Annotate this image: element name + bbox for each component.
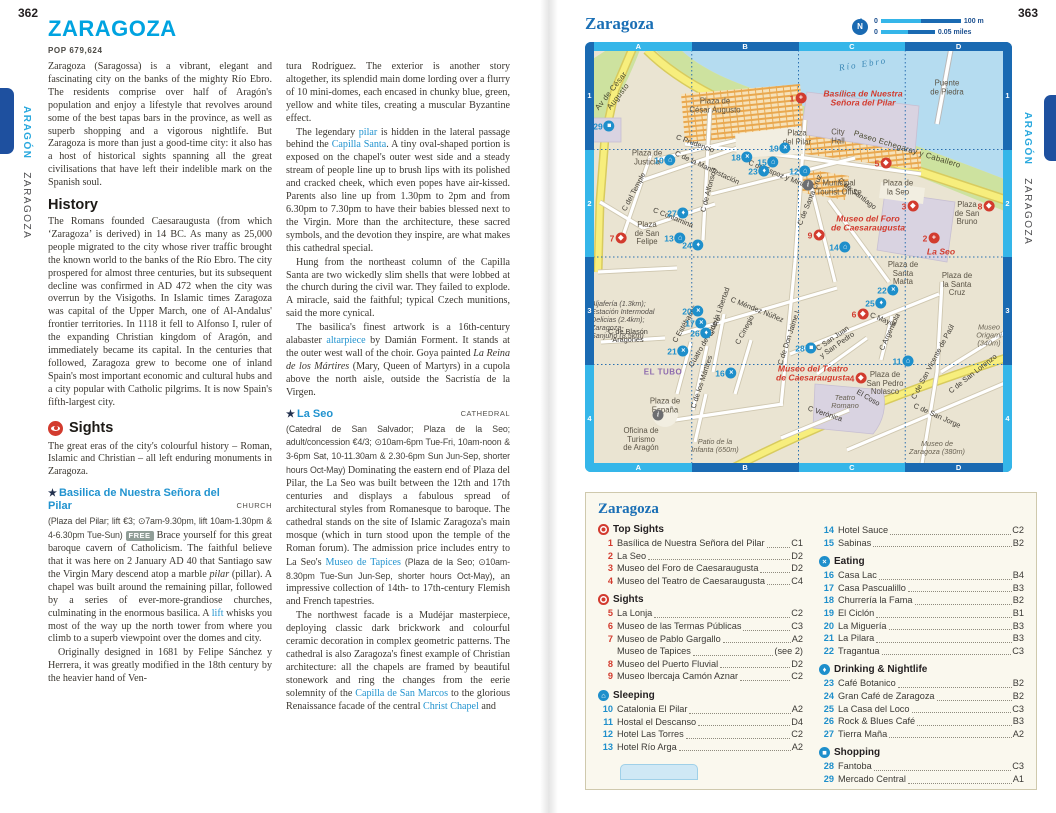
map-marker-number: 9 [808,230,813,240]
index-section-header: ⌂Sleeping [598,690,803,701]
map-marker-icon: ◆ [983,201,994,212]
index-item-leader [760,572,790,573]
index-item-number: 19 [819,607,834,620]
map-marker-number: 25 [865,298,874,308]
index-item-leader [908,783,1012,784]
map-marker-14: 14⌂ [829,242,850,253]
index-item-gridref: D2 [791,550,803,563]
map-marker-11: 11⌂ [893,356,914,367]
city-title: ZARAGOZA [48,16,510,42]
map-marker-number: 8 [978,201,983,211]
index-item-number: 6 [598,620,613,633]
poi-entry-category: CHURCH [231,500,273,513]
index-item: 1Basílica de Nuestra Señora del PilarC1 [598,537,803,550]
paragraph: The northwest facade is a Mudéjar master… [286,610,510,713]
index-item: 12Hotel Las TorresC2 [598,728,803,741]
north-arrow-icon: N [852,19,868,35]
side-city-label: ZARAGOZA [21,172,32,239]
map-label: MuseoOrigami(340m) [976,324,1002,349]
text-segment: . A tiny oval-shaped portion is exposed … [286,139,510,253]
index-item: 20La MigueríaB3 [819,620,1024,633]
text-segment: The northwest facade is a Mudéjar master… [286,610,510,698]
map-sight-label-line: La Seo [927,247,955,256]
grid-column-label-A: A [585,42,692,51]
map-label-line: de Aragón [623,444,659,453]
map-marker-icon: ♦ [678,208,689,219]
map-label-line: Sanjurjo (8.5km) [591,332,655,340]
index-item: 15SabinasB2 [819,537,1024,550]
map-marker-number: 6 [852,309,857,319]
map-marker-number: 5 [875,158,880,168]
index-item-leader [873,546,1012,547]
index-section-header: Top Sights [598,524,803,535]
map-marker-number: 22 [877,285,886,295]
index-item: 21La PilaraB3 [819,632,1024,645]
index-item-leader [937,700,1012,701]
index-item-number: 5 [598,607,613,620]
index-item-leader [693,655,774,656]
map-title: Zaragoza [585,14,654,34]
scale-metric-label: 100 m [964,18,984,25]
poi-entry-body: (Plaza del Pilar; lift €3; ⊙7am-9.30pm, … [48,515,272,646]
index-item-name: Museo de Pablo Gargallo [617,633,721,646]
grid-row-label-3: 3 [1003,257,1012,365]
index-section-title: Shopping [834,747,880,758]
poi-entry-name: ★La Seo [286,408,455,421]
index-item-gridref: C2 [791,670,803,683]
scale-bar-metric [881,19,961,23]
index-item-name: El Ciclón [838,607,874,620]
side-region-label: ARAGÓN [1022,112,1033,165]
index-section-drinking-nightlife: ♦Drinking & Nightlife23Café BotanicoB224… [819,664,1024,740]
index-item-gridref: B3 [1013,620,1024,633]
index-item-leader [917,725,1012,726]
map-marker-2: 2+ [923,233,940,244]
text-column-1: Zaragoza (Saragossa) is a vibrant, elega… [48,61,272,715]
paragraph: Originally designed in 1681 by Felipe Sá… [48,647,272,686]
paragraph: Zaragoza (Saragossa) is a vibrant, elega… [48,61,272,190]
index-item-number: 1 [598,537,613,550]
section-heading: History [48,199,272,212]
index-item: 5La LonjaC2 [598,607,803,620]
map-marker-number: 24 [682,240,691,250]
map-marker-icon: ♦ [693,240,704,251]
index-item-name: Churrería la Fama [838,594,913,607]
index-item-leader [767,547,791,548]
map-marker-icon: × [678,346,689,357]
index-item-gridref: D4 [791,716,803,729]
map-marker-icon: ⌂ [665,155,676,166]
city-map: Río EbroPuentede PiedraPaseo Echegaray y… [585,42,1012,472]
index-item-number: 7 [598,633,613,646]
map-marker-25: 25♦ [865,298,886,309]
cross-reference-link: altarpiece [326,335,365,346]
side-spacer [1022,170,1033,174]
index-item-gridref: A1 [1013,773,1024,786]
map-label: Oficina deTurismode Aragón [623,427,659,453]
index-item-number: 4 [598,575,613,588]
index-item-leader [912,712,1012,713]
index-item-leader [879,579,1012,580]
map-marker-20: 20× [682,306,703,317]
index-item-name: Tierra Maña [838,728,887,741]
paragraph: The Romans founded Caesaraugusta (from w… [48,216,272,410]
index-section-eating: ×Eating16Casa LacB417Casa PascualilloB31… [819,556,1024,657]
poi-entry-heading: ★La SeoCATHEDRAL [286,408,510,421]
map-marker-number: 26 [690,328,699,338]
text-columns: Zaragoza (Saragossa) is a vibrant, elega… [48,61,510,715]
index-item-leader [679,750,791,751]
index-item-name: Hotel Las Torres [617,728,684,741]
map-marker-5: 5◆ [875,158,892,169]
index-item: 19El CiclónB1 [819,607,1024,620]
index-item-gridref: C4 [791,575,803,588]
map-label: Aljafería (1.3km);Estación IntermodalDel… [591,300,655,340]
index-item: 4Museo del Teatro de CaesaraugustaC4 [598,575,803,588]
grid-column-label-D: D [905,42,1012,51]
grid-row-label-4: 4 [585,365,594,473]
population-line: POP 679,624 [48,46,510,55]
index-item-number: 10 [598,703,613,716]
paragraph: Hung from the northeast column of the Ca… [286,257,510,322]
map-marker-16: 16× [715,368,736,379]
index-item-name: Museo Ibercaja Camón Aznar [617,670,738,683]
shopping-category-icon: ■ [819,747,830,758]
map-label: EL TUBO [644,369,682,378]
map-scale: N 0 100 m 0 0.05 miles [852,16,1020,40]
index-item-number: 2 [598,550,613,563]
poi-entry-category: CATHEDRAL [455,408,510,421]
index-item-number: 25 [819,703,834,716]
scale-bar-imperial [881,30,935,34]
map-marker-icon: ◆ [857,309,868,320]
top-category-icon [598,524,609,535]
index-item-name: Museo del Foro de Caesaraugusta [617,562,758,575]
map-marker-icon: ♦ [701,328,712,339]
poi-entry-body: (Catedral de San Salvador; Plaza de la S… [286,423,510,610]
index-item-name: Sabinas [838,537,871,550]
map-marker-7: 7◆ [610,233,627,244]
map-label: Plaza deCésar Augusto [689,97,740,114]
grid-row-label-1: 1 [585,42,594,150]
index-item-name: Casa Lac [838,569,877,582]
map-marker-8: 8◆ [978,201,995,212]
map-label-line: la Seo [883,188,913,197]
index-item-gridref: A2 [1013,728,1024,741]
index-item: 10Catalonia El PilarA2 [598,703,803,716]
map-marker-21: 21× [667,346,688,357]
map-marker-number: 10 [654,155,663,165]
index-item-name: La Miguería [838,620,887,633]
free-badge: FREE [126,531,154,541]
map-label-line: César Augusto [689,106,740,115]
map-sight-label: Museo del Teatrode Caesaraugusta [776,365,850,384]
index-section-sleeping: ⌂Sleeping10Catalonia El PilarA211Hostal … [598,690,803,753]
map-label: Plazade SanFelipe [635,221,660,247]
index-item-gridref: B2 [1013,690,1024,703]
sights-heading: Sights [48,421,272,436]
map-sight-label: La Seo [927,247,955,256]
map-marker-19: 19× [769,143,790,154]
index-item-number: 28 [819,760,834,773]
map-marker-6: 6◆ [852,309,869,320]
index-item-leader [648,559,790,560]
index-item-gridref: D2 [791,658,803,671]
map-marker-icon: ♦ [759,166,770,177]
scale-metric: 0 100 m [874,16,984,26]
map-index-title: Zaragoza [598,501,1024,518]
map-sight-label-line: Señora del Pilar [823,99,902,108]
index-item-gridref: C3 [791,620,803,633]
index-section-title: Top Sights [613,524,664,535]
index-item-gridref: B3 [1013,632,1024,645]
map-marker-number: 13 [664,233,673,243]
index-section-title: Sights [613,594,644,605]
index-item-number: 24 [819,690,834,703]
map-marker-icon: × [888,285,899,296]
map-marker-27: 27♦ [667,208,688,219]
cross-reference-link: Museo de Tapices [325,557,400,568]
map-marker-icon: × [780,143,791,154]
map-label: CityHall [831,128,844,145]
left-page-content: ZARAGOZA POP 679,624 Zaragoza (Saragossa… [48,16,510,806]
map-label-line: Zaragoza (380m) [909,448,965,456]
map-marker-number: 19 [769,143,778,153]
index-item: 8Museo del Puerto FluvialD2 [598,658,803,671]
scale-imperial: 0 0.05 miles [874,27,971,37]
index-item: 18Churrería la FamaB2 [819,594,1024,607]
next-page-peek [620,764,698,780]
index-item-gridref: B3 [1013,582,1024,595]
index-item-leader [898,687,1012,688]
drinking-category-icon: ♦ [819,664,830,675]
map-label-line: Nolasco [867,388,904,397]
map-label: Plazade SanBruno [955,201,980,227]
index-item-leader [882,654,1012,655]
paragraph: The great eras of the city's colourful h… [48,441,272,480]
index-section-top-sights: Top Sights1Basílica de Nuestra Señora de… [598,524,803,587]
top-choice-star-icon: ★ [286,409,295,420]
map-marker-number: 7 [610,233,615,243]
grid-row-label-2: 2 [1003,150,1012,258]
map-marker-10: 10⌂ [654,155,675,166]
map-sight-label-line: de Caesaraugusta [831,224,905,233]
map-marker-number: 18 [731,152,740,162]
index-item-gridref: B2 [1013,677,1024,690]
index-section-title: Eating [834,556,865,567]
index-item-leader [720,667,790,668]
grid-column-label-B: B [692,42,799,51]
index-item-name: Museo del Teatro de Caesaraugusta [617,575,765,588]
map-marker-number: 28 [795,343,804,353]
index-item-leader [889,737,1012,738]
index-item-number: 13 [598,741,613,754]
map-marker-number: 12 [789,166,798,176]
map-marker-number: 3 [902,201,907,211]
index-item-gridref: C2 [1012,524,1024,537]
index-item: 16Casa LacB4 [819,569,1024,582]
map-marker-number: 11 [893,356,902,366]
map-marker-icon: ■ [806,343,817,354]
index-item-gridref: (see 2) [774,645,803,658]
index-item: 2La SeoD2 [598,550,803,563]
index-item-leader [686,738,791,739]
cross-reference-link: Christ Chapel [423,701,479,712]
map-marker-icon: ⌂ [903,356,914,367]
map-marker-info: i [653,410,664,421]
index-item-name: Rock & Blues Café [838,715,915,728]
text-segment: The legendary [296,127,359,138]
index-item: 17Casa PascualilloB3 [819,582,1024,595]
sights-eye-icon [48,421,63,436]
left-page: 362 ARAGÓN ZARAGOZA ZARAGOZA POP 679,624… [0,0,545,813]
text-segment: The great eras of the city's colourful h… [48,441,272,478]
index-item-number: 20 [819,620,834,633]
map-sight-label: Museo del Forode Caesaraugusta [831,215,905,234]
index-item: 28FantobaC3 [819,760,1024,773]
map-marker-number: 17 [685,318,694,328]
map-marker-22: 22× [877,285,898,296]
text-segment: Hung from the northeast column of the Ca… [286,257,510,320]
map-marker-24: 24♦ [682,240,703,251]
grid-column-label-A: A [585,463,692,472]
index-item-name: La Lonja [617,607,652,620]
index-item-gridref: A2 [792,633,803,646]
index-item: 27Tierra MañaA2 [819,728,1024,741]
map-marker-number: 2 [923,233,928,243]
eating-category-icon: × [819,556,830,567]
map-label-line: Hall [831,137,844,146]
scale-imperial-label: 0.05 miles [938,29,971,36]
index-item-leader [689,713,790,714]
text-segment: Zaragoza (Saragossa) is a vibrant, elega… [48,61,272,188]
grid-row-label-3: 3 [585,257,594,365]
index-column-2: 14Hotel SauceC215SabinasB2×Eating16Casa … [819,524,1024,793]
index-item-gridref: C2 [791,728,803,741]
map-marker-icon: ■ [604,121,615,132]
paragraph: The legendary pilar is hidden in the lat… [286,127,510,256]
index-item: 22TragantuaC3 [819,645,1024,658]
right-page: 363 Zaragoza N 0 100 m 0 0.05 miles [560,0,1056,813]
index-item: 13Hotel Río ArgaA2 [598,741,803,754]
map-label-line: Bruno [955,218,980,227]
map-label: Plaza deSantaMarta [888,261,918,287]
index-item-number: 16 [819,569,834,582]
index-section-title: Drinking & Nightlife [834,664,927,675]
map-marker-number: 27 [667,208,676,218]
index-item-gridref: C3 [1012,760,1024,773]
cross-reference-link: pilar [359,127,378,138]
text-segment: The Romans founded Caesaraugusta (from w… [48,216,272,408]
side-region-label: ARAGÓN [21,106,32,159]
sights-heading-label: Sights [69,422,113,435]
index-item: 11Hostal el DescansoD4 [598,716,803,729]
map-marker-icon: × [693,306,704,317]
index-item-name: Museo de Tapices [617,645,691,658]
index-item-name: Catalonia El Pilar [617,703,687,716]
index-item-name: La Seo [617,550,646,563]
map-marker-23: 23♦ [748,166,769,177]
scale-zero: 0 [874,18,878,25]
index-item-number: 12 [598,728,613,741]
index-item-number: 9 [598,670,613,683]
index-section-title: Sleeping [613,690,655,701]
map-marker-number: 4 [850,373,855,383]
guidebook-spread: 362 ARAGÓN ZARAGOZA ZARAGOZA POP 679,624… [0,0,1056,813]
index-item: 26Rock & Blues CaféB3 [819,715,1024,728]
map-marker-icon: + [795,93,806,104]
index-item-gridref: B2 [1013,594,1024,607]
text-segment: pilar [210,569,230,580]
index-item-leader [876,642,1011,643]
index-item-gridref: B2 [1013,537,1024,550]
index-item-number: 23 [819,677,834,690]
map-label: Puentede Piedra [930,79,963,96]
index-item-leader [908,591,1012,592]
sights-category-icon [598,594,609,605]
index-item-leader [876,617,1011,618]
index-item: 7Museo de Pablo GargalloA2 [598,633,803,646]
poi-entry-heading: ★Basilica de Nuestra Señora del PilarCHU… [48,487,272,513]
map-marker-number: 1 [790,93,795,103]
index-item-number: 18 [819,594,834,607]
map-marker-icon: ◆ [813,230,824,241]
map-marker-28: 28■ [795,343,816,354]
index-item: 9Museo Ibercaja Camón AznarC2 [598,670,803,683]
index-item-leader [723,642,791,643]
map-label-line: Infanta (650m) [691,446,738,454]
index-item-name: Hotel Sauce [838,524,888,537]
index-item-number: 3 [598,562,613,575]
text-segment: Dominating the eastern end of Plaza del … [286,465,510,567]
text-column-2: tura Rodríguez. The exterior is another … [286,61,510,715]
map-marker-icon: ◆ [615,233,626,244]
map-marker-number: 14 [829,242,838,252]
map-index: Zaragoza Top Sights1Basílica de Nuestra … [585,492,1037,790]
top-choice-star-icon: ★ [48,488,57,499]
paragraph: The basilica's finest artwork is a 16th-… [286,322,510,399]
map-marker-icon: ◆ [855,373,866,384]
map-marker-info: i [803,180,814,191]
side-tab-text-left: ARAGÓN ZARAGOZA [21,106,32,239]
map-marker-12: 12⌂ [789,166,810,177]
index-item-leader [743,630,790,631]
chapter-tab-left [0,88,14,154]
map-label-line: EL TUBO [644,369,682,378]
map-index-columns: Top Sights1Basílica de Nuestra Señora de… [598,524,1024,793]
index-item-name: Casa Pascualillo [838,582,906,595]
index-item-name: Basílica de Nuestra Señora del Pilar [617,537,765,550]
text-segment: and [479,701,496,712]
map-label: Plaza deSan PedroNolasco [867,371,904,397]
text-segment: tura Rodríguez. The exterior is another … [286,61,510,124]
index-item-number: 15 [819,537,834,550]
page-number-left: 362 [18,6,38,20]
map-label: TeatroRomano [831,394,859,410]
index-item: 23Café BotanicoB2 [819,677,1024,690]
map-label-line: Cruz [942,289,972,298]
index-item-name: La Casa del Loco [838,703,910,716]
index-item-name: Mercado Central [838,773,906,786]
map-marker-1: 1+ [790,93,807,104]
index-item-gridref: C3 [1012,645,1024,658]
map-marker-29: 29■ [593,121,614,132]
grid-column-label-C: C [799,42,906,51]
index-section-shopping: ■Shopping28FantobaC329Mercado CentralA1 [819,747,1024,785]
map-marker-3: 3◆ [902,201,919,212]
poi-entry-name: ★Basilica de Nuestra Señora del Pilar [48,487,231,513]
index-item-leader [698,725,790,726]
